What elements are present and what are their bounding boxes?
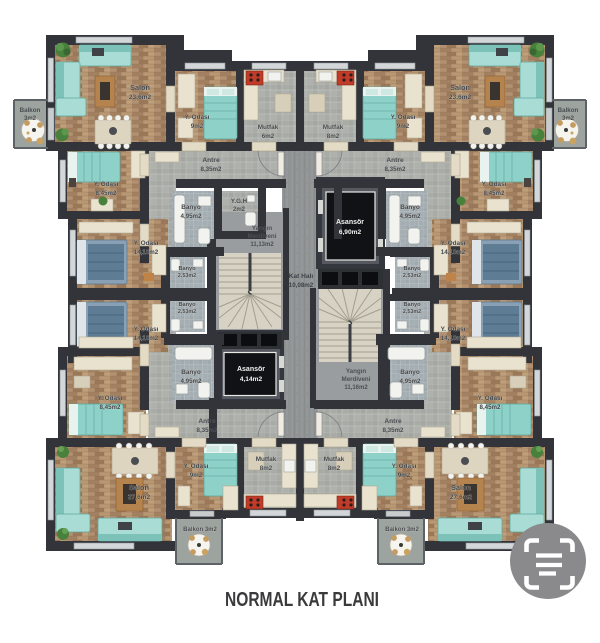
svg-text:8m2: 8m2 (327, 133, 340, 140)
svg-text:4,95m2: 4,95m2 (400, 378, 422, 385)
svg-text:9m2: 9m2 (190, 472, 203, 479)
svg-text:23,6m2: 23,6m2 (129, 94, 152, 101)
svg-text:Balkon: Balkon (20, 107, 41, 114)
svg-text:Antre: Antre (384, 418, 402, 425)
svg-text:Y. Odası: Y. Odası (134, 240, 159, 247)
svg-text:Balkon 3m2: Balkon 3m2 (385, 527, 419, 533)
svg-text:Asansör: Asansör (237, 366, 265, 373)
svg-text:4,95m2: 4,95m2 (181, 378, 203, 385)
svg-text:2,53m2: 2,53m2 (178, 309, 196, 315)
svg-text:Y. Odası: Y. Odası (441, 326, 466, 333)
svg-text:14,10m2: 14,10m2 (441, 249, 466, 256)
svg-text:10,08m2: 10,08m2 (289, 282, 314, 289)
svg-text:Kat Halı: Kat Halı (289, 273, 314, 280)
svg-text:9m2: 9m2 (398, 472, 411, 479)
svg-text:9m2: 9m2 (397, 123, 410, 130)
svg-text:Merdiveni: Merdiveni (342, 376, 371, 383)
svg-text:Y. Odası: Y. Odası (391, 114, 416, 121)
svg-text:14,10m2: 14,10m2 (134, 249, 159, 256)
svg-text:9m2: 9m2 (191, 123, 204, 130)
svg-text:27,6m2: 27,6m2 (450, 494, 473, 501)
svg-text:Salon: Salon (451, 483, 472, 492)
svg-text:8m2: 8m2 (260, 465, 273, 472)
svg-text:Mutfak: Mutfak (256, 456, 277, 463)
svg-text:Banyo: Banyo (178, 302, 196, 308)
svg-text:Salon: Salon (129, 483, 150, 492)
svg-text:Salon: Salon (450, 83, 471, 92)
svg-text:Banyo: Banyo (403, 266, 421, 272)
svg-text:4,95m2: 4,95m2 (400, 213, 422, 220)
svg-text:Y. Odası: Y. Odası (478, 395, 503, 402)
svg-text:8,35m2: 8,35m2 (383, 427, 405, 434)
svg-text:8,35m2: 8,35m2 (197, 427, 219, 434)
svg-text:27,6m2: 27,6m2 (128, 494, 151, 501)
svg-text:Y. Odası: Y. Odası (482, 181, 507, 188)
svg-text:Balkon: Balkon (558, 107, 579, 114)
svg-text:NORMAL KAT PLANI: NORMAL KAT PLANI (225, 588, 379, 611)
svg-text:8,35m2: 8,35m2 (385, 166, 407, 173)
svg-text:14,10m2: 14,10m2 (134, 335, 159, 342)
svg-text:Yangın: Yangın (252, 225, 273, 232)
svg-text:8m2: 8m2 (328, 465, 341, 472)
svg-text:Mutfak: Mutfak (323, 124, 344, 131)
svg-text:2,53m2: 2,53m2 (403, 309, 421, 315)
svg-text:Banyo: Banyo (400, 204, 420, 211)
svg-text:3m2: 3m2 (24, 116, 37, 122)
svg-text:Banyo: Banyo (400, 369, 420, 376)
svg-text:Mutfak: Mutfak (324, 456, 345, 463)
svg-text:4,95m2: 4,95m2 (181, 213, 203, 220)
svg-text:Y. Odası: Y. Odası (185, 114, 210, 121)
svg-text:Merdiveni: Merdiveni (248, 233, 277, 240)
svg-text:Antre: Antre (198, 418, 216, 425)
svg-text:8,45m2: 8,45m2 (100, 404, 122, 411)
svg-text:Asansör: Asansör (336, 219, 364, 226)
svg-text:11,13m2: 11,13m2 (250, 242, 274, 248)
svg-text:Y. Odası: Y. Odası (98, 395, 123, 402)
svg-text:11,16m2: 11,16m2 (344, 385, 368, 391)
svg-text:Y. Odası: Y. Odası (184, 463, 209, 470)
svg-text:Banyo: Banyo (181, 204, 201, 211)
svg-text:Balkon 3m2: Balkon 3m2 (183, 527, 217, 533)
svg-text:Banyo: Banyo (181, 369, 201, 376)
svg-text:6,90m2: 6,90m2 (339, 229, 362, 236)
svg-text:2m2: 2m2 (233, 207, 246, 213)
svg-text:Banyo: Banyo (178, 266, 196, 272)
svg-text:3m2: 3m2 (562, 116, 575, 122)
svg-text:8,45m2: 8,45m2 (480, 404, 502, 411)
svg-text:23,6m2: 23,6m2 (449, 94, 472, 101)
svg-text:2,53m2: 2,53m2 (403, 273, 421, 279)
svg-text:Yangın: Yangın (346, 368, 367, 375)
svg-text:14,10m2: 14,10m2 (441, 335, 466, 342)
svg-text:Banyo: Banyo (403, 302, 421, 308)
svg-text:Y. Odası: Y. Odası (392, 463, 417, 470)
svg-text:8,35m2: 8,35m2 (201, 166, 223, 173)
svg-text:2,53m2: 2,53m2 (178, 273, 196, 279)
svg-text:4,14m2: 4,14m2 (240, 376, 263, 383)
svg-text:8,45m2: 8,45m2 (484, 190, 506, 197)
svg-text:Mutfak: Mutfak (258, 124, 279, 131)
svg-text:6m2: 6m2 (262, 133, 275, 140)
svg-text:Antre: Antre (202, 157, 220, 164)
svg-text:Y. Odası: Y. Odası (441, 240, 466, 247)
svg-text:Y. Odası: Y. Odası (134, 326, 159, 333)
svg-text:Salon: Salon (130, 83, 151, 92)
svg-text:Y.G.H: Y.G.H (231, 198, 248, 205)
svg-text:Y. Odası: Y. Odası (94, 181, 119, 188)
svg-text:Antre: Antre (386, 157, 404, 164)
svg-text:8,45m2: 8,45m2 (96, 190, 118, 197)
